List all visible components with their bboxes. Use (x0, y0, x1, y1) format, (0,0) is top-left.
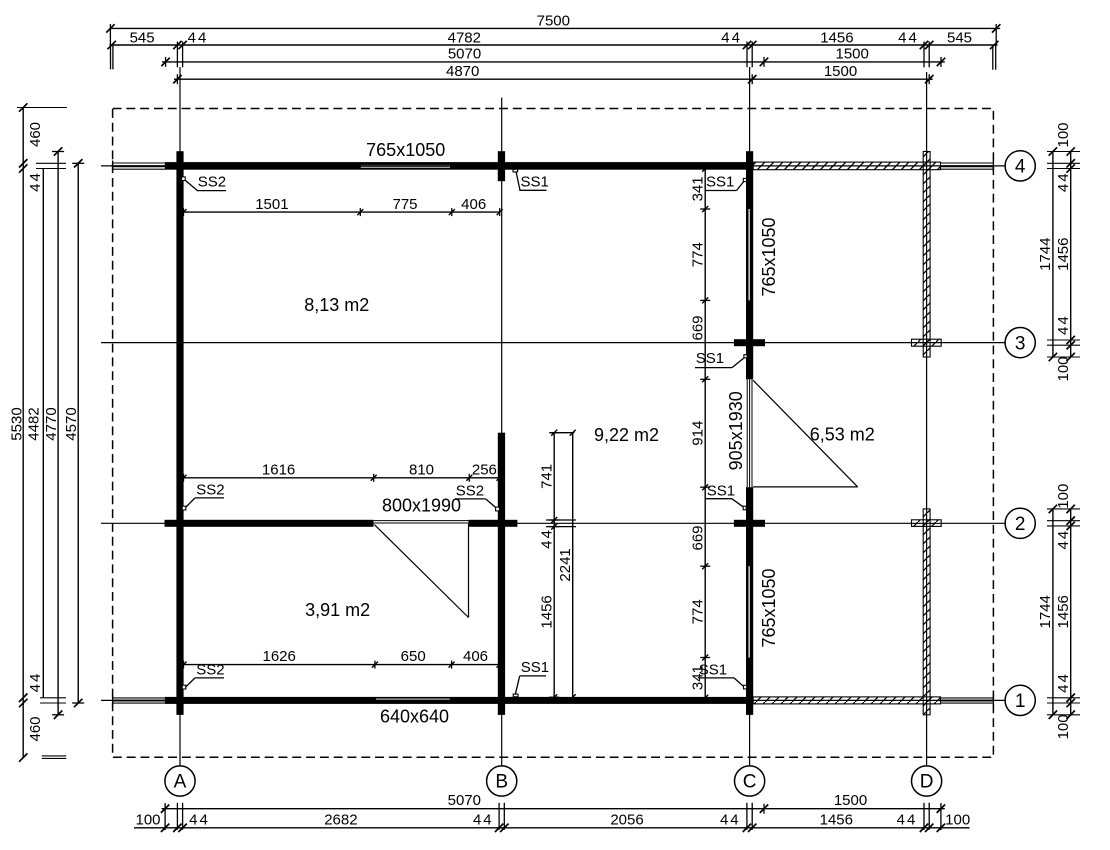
svg-text:1: 1 (1015, 691, 1026, 712)
svg-text:1456: 1456 (820, 30, 853, 47)
svg-text:1500: 1500 (836, 46, 869, 63)
svg-text:100: 100 (1055, 484, 1072, 509)
svg-text:SS1: SS1 (706, 174, 734, 191)
svg-text:44: 44 (898, 30, 919, 47)
svg-text:SS1: SS1 (699, 661, 727, 678)
svg-text:100: 100 (945, 811, 970, 828)
svg-text:2: 2 (1015, 514, 1026, 535)
svg-text:775: 775 (392, 196, 417, 213)
svg-text:1456: 1456 (538, 595, 555, 628)
svg-text:SS1: SS1 (521, 659, 549, 676)
svg-text:100: 100 (1055, 356, 1072, 381)
svg-text:5070: 5070 (448, 792, 481, 809)
svg-text:9,22 m2: 9,22 m2 (594, 425, 659, 445)
svg-text:669: 669 (689, 315, 706, 340)
svg-text:810: 810 (409, 461, 434, 478)
svg-text:4: 4 (1015, 157, 1026, 178)
svg-text:SS2: SS2 (196, 661, 224, 678)
svg-text:4870: 4870 (446, 63, 479, 80)
svg-text:6,53 m2: 6,53 m2 (810, 424, 875, 444)
svg-text:44: 44 (1055, 171, 1072, 192)
svg-text:800x1990: 800x1990 (382, 495, 461, 515)
svg-text:545: 545 (130, 30, 155, 47)
svg-text:765x1050: 765x1050 (759, 217, 779, 296)
svg-text:765x1050: 765x1050 (759, 568, 779, 647)
svg-text:1456: 1456 (1055, 238, 1072, 271)
svg-text:2241: 2241 (557, 548, 574, 581)
svg-text:44: 44 (1055, 314, 1072, 335)
svg-text:B: B (495, 772, 508, 793)
svg-text:4482: 4482 (26, 407, 43, 440)
svg-text:SS2: SS2 (196, 481, 224, 498)
svg-text:44: 44 (897, 811, 918, 828)
svg-text:4570: 4570 (63, 407, 80, 440)
svg-text:640x640: 640x640 (380, 707, 449, 727)
svg-text:2056: 2056 (610, 811, 643, 828)
svg-text:D: D (920, 772, 934, 793)
svg-text:905x1930: 905x1930 (726, 391, 746, 470)
svg-text:3,91 m2: 3,91 m2 (305, 600, 370, 620)
svg-text:4782: 4782 (448, 30, 481, 47)
svg-text:914: 914 (689, 421, 706, 446)
svg-text:2682: 2682 (324, 811, 357, 828)
svg-text:C: C (743, 772, 757, 793)
svg-text:765x1050: 765x1050 (366, 140, 445, 160)
svg-text:100: 100 (135, 811, 160, 828)
svg-text:SS1: SS1 (707, 482, 735, 499)
svg-text:44: 44 (27, 171, 44, 192)
svg-text:1501: 1501 (255, 196, 288, 213)
svg-text:SS1: SS1 (696, 350, 724, 367)
svg-text:256: 256 (472, 461, 497, 478)
svg-text:5070: 5070 (448, 46, 481, 63)
svg-text:1500: 1500 (834, 792, 867, 809)
svg-text:1616: 1616 (262, 461, 295, 478)
svg-text:1500: 1500 (824, 63, 857, 80)
svg-text:SS2: SS2 (198, 173, 226, 190)
svg-text:44: 44 (188, 30, 209, 47)
svg-text:1744: 1744 (1037, 238, 1054, 271)
svg-text:460: 460 (27, 122, 44, 147)
svg-text:545: 545 (947, 30, 972, 47)
svg-text:1456: 1456 (820, 811, 853, 828)
svg-text:1456: 1456 (1055, 595, 1072, 628)
svg-text:44: 44 (1055, 529, 1072, 550)
svg-text:44: 44 (27, 672, 44, 693)
svg-text:460: 460 (27, 716, 44, 741)
svg-text:741: 741 (538, 464, 555, 489)
svg-text:44: 44 (1055, 672, 1072, 693)
svg-text:7500: 7500 (537, 12, 570, 29)
svg-text:406: 406 (463, 648, 488, 665)
svg-text:8,13 m2: 8,13 m2 (304, 295, 369, 315)
svg-text:44: 44 (721, 30, 742, 47)
svg-text:669: 669 (689, 525, 706, 550)
svg-text:1744: 1744 (1037, 595, 1054, 628)
svg-text:SS1: SS1 (521, 174, 549, 191)
svg-text:A: A (174, 772, 187, 793)
svg-text:44: 44 (538, 528, 555, 549)
svg-text:650: 650 (401, 648, 426, 665)
svg-text:100: 100 (1055, 714, 1072, 739)
svg-text:4770: 4770 (43, 407, 60, 440)
svg-text:44: 44 (189, 811, 210, 828)
svg-text:3: 3 (1015, 333, 1026, 354)
svg-text:774: 774 (689, 242, 706, 267)
svg-text:341: 341 (689, 176, 706, 201)
svg-text:406: 406 (461, 196, 486, 213)
svg-text:1626: 1626 (263, 648, 296, 665)
svg-text:44: 44 (720, 811, 741, 828)
svg-text:44: 44 (473, 811, 494, 828)
svg-text:774: 774 (689, 599, 706, 624)
svg-text:100: 100 (1055, 122, 1072, 147)
svg-text:5530: 5530 (8, 407, 25, 440)
